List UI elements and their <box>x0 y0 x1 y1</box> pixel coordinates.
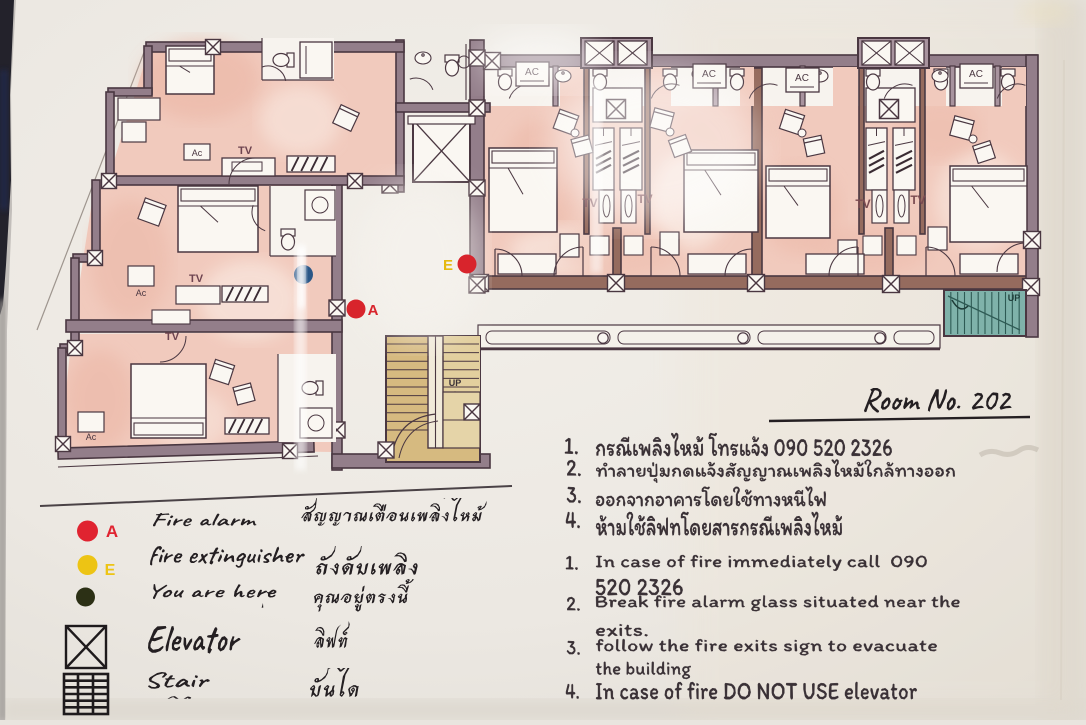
svg-text:UP: UP <box>1008 293 1021 303</box>
svg-text:TV: TV <box>238 145 253 157</box>
svg-text:AC: AC <box>795 73 809 84</box>
svg-text:TV: TV <box>855 197 870 211</box>
svg-text:UP: UP <box>449 378 462 388</box>
svg-text:Ac: Ac <box>86 432 97 442</box>
svg-text:Ac: Ac <box>192 148 203 158</box>
svg-text:TV: TV <box>910 193 925 207</box>
svg-text:TV: TV <box>165 331 180 343</box>
svg-text:Ac: Ac <box>136 288 147 298</box>
svg-text:TV: TV <box>189 273 204 285</box>
svg-text:E: E <box>105 562 116 579</box>
svg-text:A: A <box>106 522 118 541</box>
svg-text:AC: AC <box>969 69 983 80</box>
svg-text:E: E <box>443 257 453 274</box>
svg-text:A: A <box>368 302 379 319</box>
